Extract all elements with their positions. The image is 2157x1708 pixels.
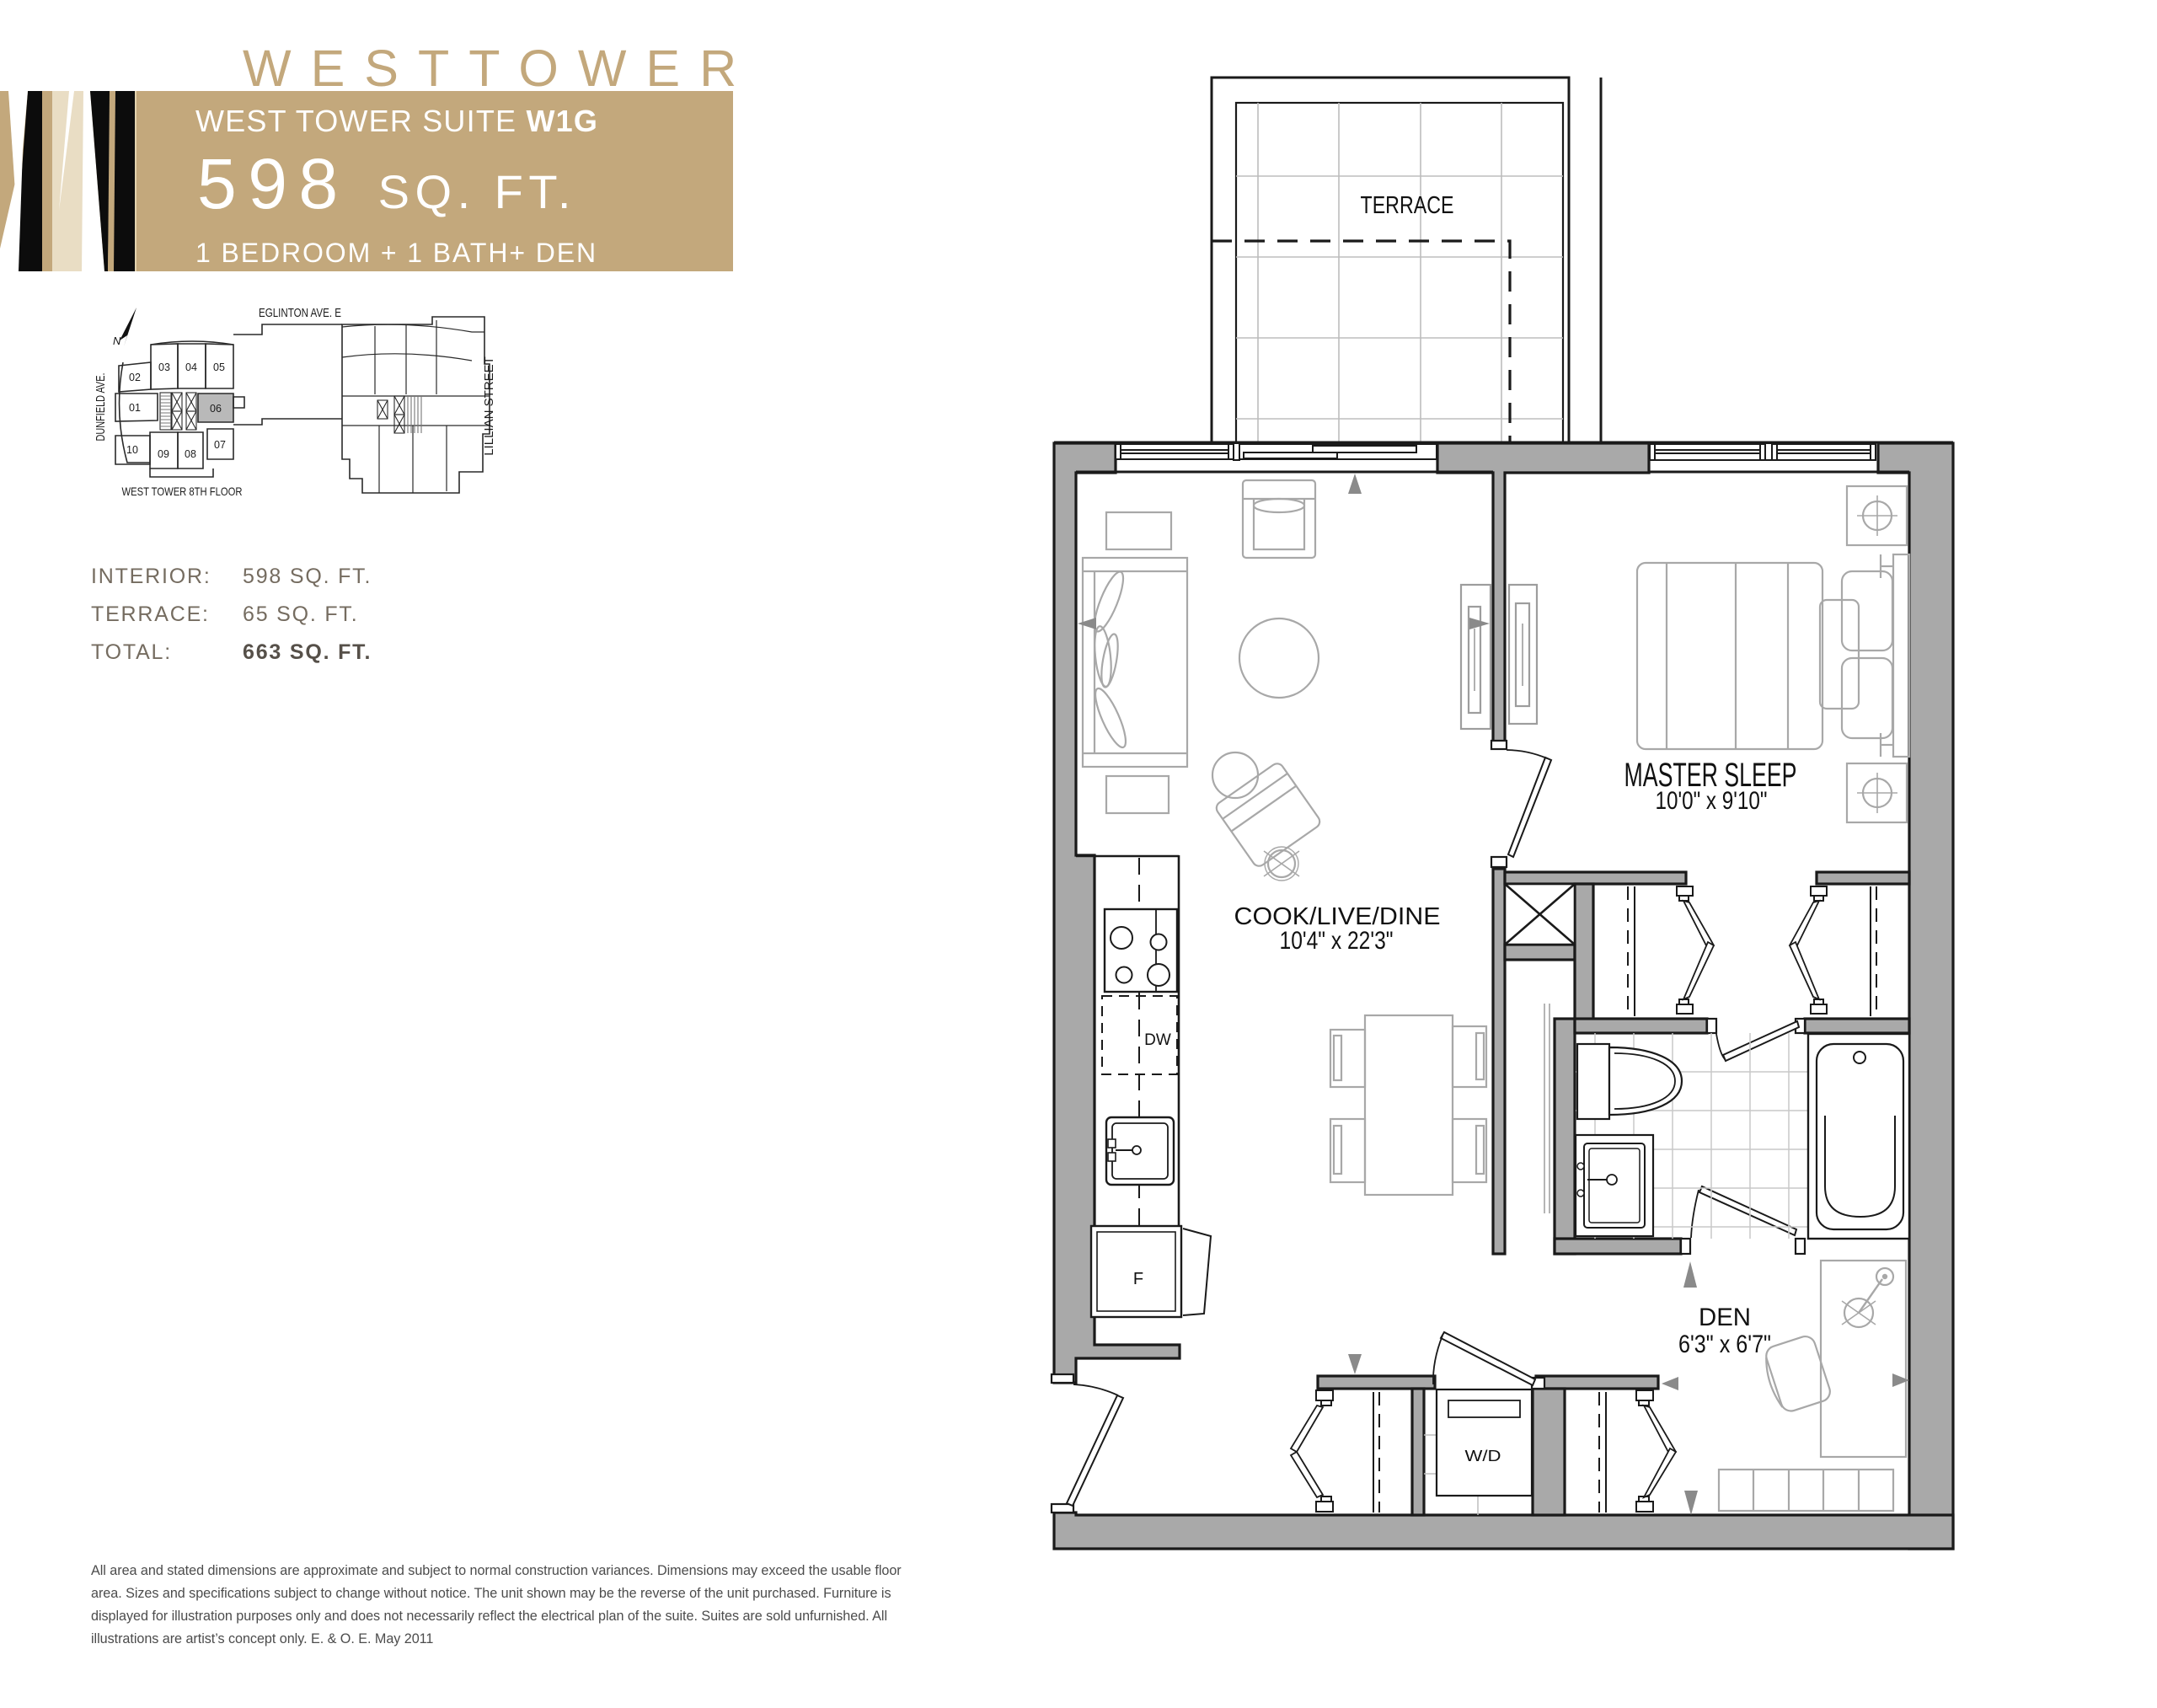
svg-text:INTERIOR:: INTERIOR: bbox=[91, 565, 211, 588]
svg-text:1 BEDROOM + 1 BATH+ DEN: 1 BEDROOM + 1 BATH+ DEN bbox=[195, 238, 597, 268]
svg-text:area. Sizes and specifications: area. Sizes and specifications subject t… bbox=[91, 1586, 891, 1601]
svg-text:10: 10 bbox=[126, 444, 138, 456]
svg-text:displayed for illustration pur: displayed for illustration purposes only… bbox=[91, 1609, 887, 1624]
svg-text:05: 05 bbox=[213, 361, 225, 373]
svg-text:03: 03 bbox=[158, 361, 170, 373]
svg-text:02: 02 bbox=[129, 372, 141, 383]
svg-text:663 SQ. FT.: 663 SQ. FT. bbox=[243, 640, 372, 664]
svg-text:04: 04 bbox=[185, 361, 197, 373]
svg-text:6'3" x 6'7": 6'3" x 6'7" bbox=[1678, 1331, 1771, 1358]
svg-text:TOTAL:: TOTAL: bbox=[91, 640, 172, 664]
svg-text:08: 08 bbox=[185, 448, 196, 460]
svg-text:07: 07 bbox=[214, 439, 226, 451]
svg-text:10'0" x 9'10": 10'0" x 9'10" bbox=[1656, 787, 1768, 815]
svg-text:09: 09 bbox=[158, 448, 169, 460]
svg-text:10'4" x 22'3": 10'4" x 22'3" bbox=[1280, 927, 1394, 955]
svg-text:All area and stated dimensions: All area and stated dimensions are appro… bbox=[91, 1563, 902, 1578]
svg-text:LILLIAN STREET: LILLIAN STREET bbox=[482, 356, 496, 456]
svg-text:EGLINTON AVE. E: EGLINTON AVE. E bbox=[259, 306, 341, 320]
svg-text:598 SQ. FT.: 598 SQ. FT. bbox=[243, 565, 372, 588]
svg-text:TERRACE: TERRACE bbox=[1361, 192, 1454, 219]
svg-text:WEST TOWER SUITE W1G: WEST TOWER SUITE W1G bbox=[195, 104, 598, 138]
svg-text:01: 01 bbox=[129, 402, 141, 414]
svg-text:06: 06 bbox=[210, 403, 222, 415]
svg-text:WEST TOWER 8TH FLOOR: WEST TOWER 8TH FLOOR bbox=[122, 485, 243, 498]
svg-text:F: F bbox=[1133, 1270, 1143, 1288]
svg-text:N: N bbox=[113, 335, 121, 347]
svg-text:DW: DW bbox=[1144, 1031, 1171, 1049]
svg-text:65 SQ. FT.: 65 SQ. FT. bbox=[243, 602, 358, 626]
svg-text:TERRACE:: TERRACE: bbox=[91, 602, 210, 626]
svg-text:illustrations are artist’s con: illustrations are artist’s concept only.… bbox=[91, 1631, 433, 1646]
svg-text:WESTTOWER: WESTTOWER bbox=[243, 40, 756, 97]
svg-text:W/D: W/D bbox=[1465, 1447, 1501, 1464]
svg-text:DEN: DEN bbox=[1699, 1304, 1751, 1331]
svg-text:DUNFIELD AVE.: DUNFIELD AVE. bbox=[94, 373, 108, 442]
